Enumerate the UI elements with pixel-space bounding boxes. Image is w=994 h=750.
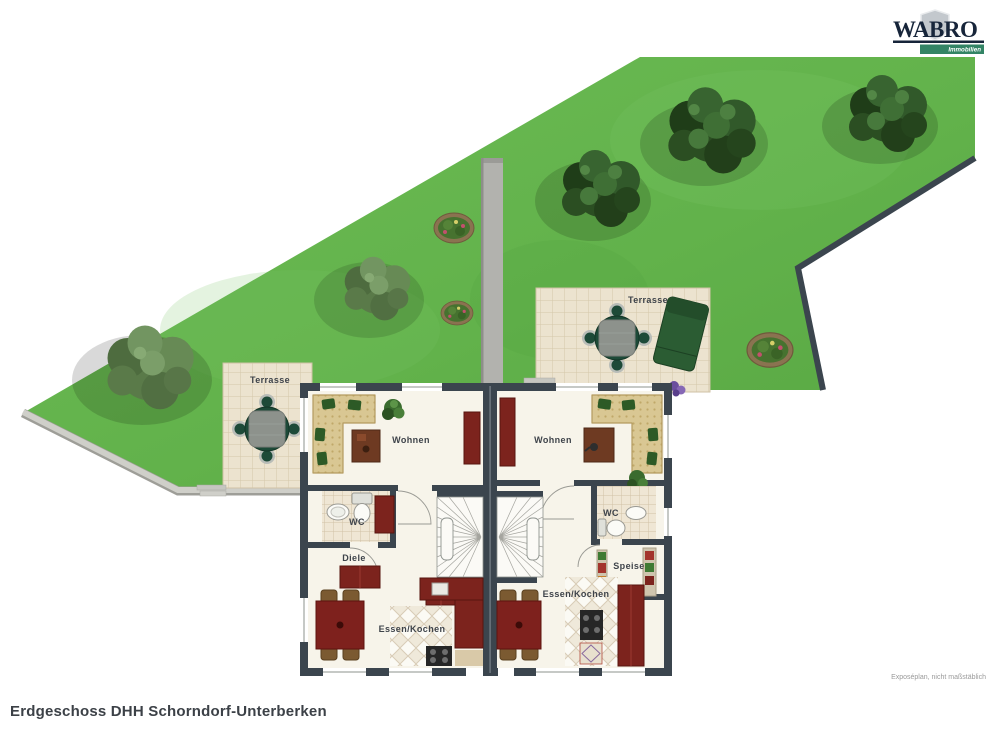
terrace-door xyxy=(556,383,598,391)
stove xyxy=(580,610,603,640)
room-label-kitchen-right: Essen/Kochen xyxy=(543,589,610,599)
window xyxy=(602,668,645,676)
hall-cabinet xyxy=(375,496,394,533)
cabinet xyxy=(464,412,480,464)
room-label-terrace-right: Terrasse xyxy=(628,295,668,305)
stove xyxy=(426,646,452,666)
room-label-terrace-left: Terrasse xyxy=(250,375,290,385)
coffee-table xyxy=(584,428,614,462)
sideboard xyxy=(340,566,380,588)
site-plan: Terrasse Terrasse Wohnen Wohnen WC WC Di… xyxy=(0,0,994,750)
room-label-pantry: Speise xyxy=(613,561,644,571)
dining-set xyxy=(497,590,541,660)
building xyxy=(300,383,672,676)
plan-title: Erdgeschoss DHH Schorndorf-Unterberken xyxy=(10,703,327,720)
window xyxy=(618,383,652,391)
toilet xyxy=(598,519,625,536)
window xyxy=(323,668,366,676)
room-label-hall: Diele xyxy=(342,553,366,563)
terrace-right xyxy=(524,288,710,397)
staircase-left xyxy=(437,497,483,577)
divider-path xyxy=(481,158,503,385)
dining-set xyxy=(316,590,364,660)
floorplan-page: Terrasse Terrasse Wohnen Wohnen WC WC Di… xyxy=(0,0,994,750)
kitchen-counter xyxy=(455,600,483,648)
logo-underline xyxy=(893,41,984,44)
party-wall-joint xyxy=(489,386,491,673)
logo-brand: WABRO xyxy=(893,17,977,42)
window xyxy=(664,415,672,458)
kitchen-counter xyxy=(420,578,483,600)
entry-door xyxy=(466,668,483,676)
cabinet xyxy=(500,398,515,466)
window xyxy=(320,383,356,391)
company-logo: WABRO Immobilien xyxy=(890,6,990,56)
counter-end xyxy=(455,650,483,666)
logo-tagline: Immobilien xyxy=(948,47,981,54)
window xyxy=(536,668,579,676)
staircase-right xyxy=(497,497,543,577)
room-label-kitchen-left: Essen/Kochen xyxy=(379,624,446,634)
wc-sink xyxy=(626,507,646,520)
terrace-door xyxy=(300,398,308,452)
window xyxy=(402,383,442,391)
disclaimer-note: Exposéplan, nicht maßstäblich xyxy=(891,674,986,681)
flower-bed xyxy=(441,301,473,325)
room-label-living-left: Wohnen xyxy=(392,435,430,445)
decor-tile xyxy=(580,643,602,664)
room-label-wc-right: WC xyxy=(603,508,619,518)
room-label-living-right: Wohnen xyxy=(534,435,572,445)
window xyxy=(664,508,672,536)
wc-sink xyxy=(327,504,349,520)
flower-bed xyxy=(434,213,474,243)
kitchen-sink xyxy=(432,583,448,595)
window xyxy=(300,598,308,642)
flower-bed xyxy=(747,333,793,368)
window xyxy=(389,668,432,676)
room-label-wc-left: WC xyxy=(349,517,365,527)
coffee-table xyxy=(352,430,380,462)
logo-graphic: WABRO Immobilien xyxy=(890,6,990,56)
entry-door xyxy=(498,668,514,676)
